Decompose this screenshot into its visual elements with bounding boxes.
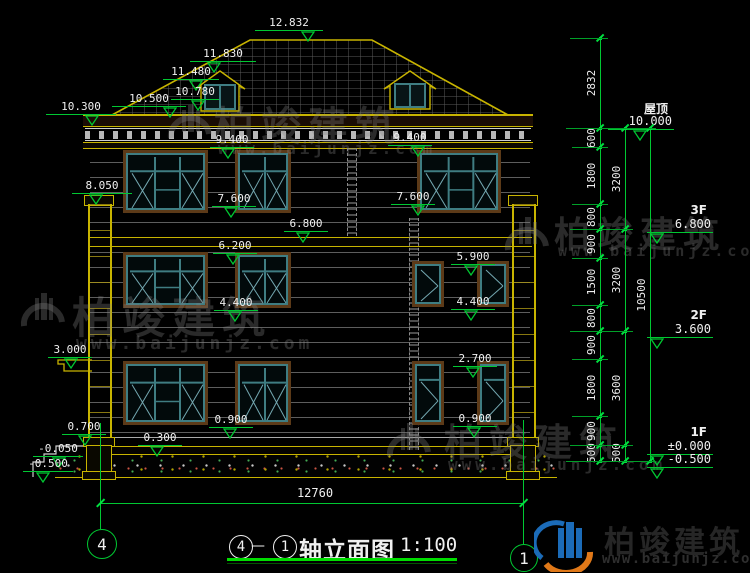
level-value: 12.832 [255, 16, 323, 29]
floor-name: 2F [690, 308, 707, 322]
overall-dim-line [100, 503, 523, 504]
title-underline [227, 558, 457, 561]
level-value: -0.500 [23, 457, 73, 470]
axis-bubble: 4 [87, 529, 117, 559]
axis-line-1 [523, 420, 524, 544]
extension-line [572, 147, 608, 148]
level-marker: 9.400 [388, 132, 432, 146]
brand-url: www.baijunjz.com [602, 551, 750, 567]
level-marker: 2.700 [453, 353, 497, 367]
level-triangle-icon [226, 254, 240, 265]
dim-chain-value: 3200 [610, 157, 624, 201]
watermark-logo-icon [500, 212, 552, 264]
title-underline-2 [227, 563, 457, 564]
dim-chain-value: 500 [610, 431, 624, 475]
extension-line [566, 128, 656, 129]
floor-level-marker: 1F±0.000 [647, 425, 713, 455]
level-triangle-icon [89, 194, 103, 205]
level-marker: 5.900 [451, 251, 495, 265]
elevation-drawing-canvas: 柏竣建筑www.baijunjz.com柏竣建筑www.baijunjz.com… [0, 0, 750, 573]
level-triangle-icon [650, 338, 664, 349]
extension-line [572, 204, 608, 205]
window [123, 150, 208, 213]
level-triangle-icon [301, 31, 315, 42]
window-frame [415, 364, 441, 422]
level-triangle-icon [36, 472, 50, 483]
level-triangle-icon [464, 265, 478, 276]
watermark-url: www.baijunjz.com [448, 455, 666, 474]
level-value: 8.050 [72, 179, 132, 192]
level-marker: 10.300 [46, 101, 116, 115]
level-triangle-icon [64, 358, 78, 369]
level-triangle-icon [221, 148, 235, 159]
level-marker: 0.900 [453, 413, 497, 427]
extension-line [570, 38, 608, 39]
watermark-logo-icon [16, 288, 68, 340]
dim-chain-value: 1800 [585, 154, 599, 198]
level-triangle-icon [191, 100, 205, 111]
level-triangle-icon [223, 428, 237, 439]
level-triangle-icon [650, 233, 664, 244]
level-triangle-icon [85, 115, 99, 126]
level-marker: 4.400 [451, 296, 495, 310]
window [412, 361, 444, 425]
window [412, 261, 444, 307]
level-triangle-icon [464, 310, 478, 321]
extension-line [570, 229, 633, 230]
level-value: 9.400 [388, 131, 432, 144]
floor-level-marker: 屋顶10.000 [608, 100, 674, 130]
floor-elevation-value: -0.500 [668, 453, 711, 466]
level-triangle-icon [467, 427, 481, 438]
level-value: 7.600 [391, 190, 435, 203]
floor-level-marker: 2F3.600 [647, 308, 713, 338]
window [123, 361, 208, 425]
overall-width-dim: 12760 [280, 487, 350, 500]
level-marker: 11.830 [190, 48, 256, 62]
level-triangle-icon [633, 130, 647, 141]
level-triangle-icon [411, 146, 425, 157]
level-triangle-icon [228, 311, 242, 322]
level-marker: 9.400 [210, 134, 254, 148]
downspout [347, 148, 357, 236]
axis-line-4 [100, 423, 101, 529]
floor-name: 1F [690, 425, 707, 439]
window-frame [415, 264, 441, 304]
level-marker: -0.050 [33, 443, 83, 457]
level-marker: 6.800 [284, 218, 328, 232]
level-triangle-icon [224, 207, 238, 218]
level-triangle-icon [296, 232, 310, 243]
extension-line [570, 445, 633, 446]
dim-chain-line [600, 38, 601, 461]
level-marker: 6.200 [213, 240, 257, 254]
level-triangle-icon [650, 468, 664, 479]
watermark-url: www.baijunjz.com [76, 333, 313, 354]
level-value: 11.830 [190, 47, 256, 60]
level-value: 2.700 [453, 352, 497, 365]
level-value: 6.800 [284, 217, 328, 230]
extension-line [572, 305, 608, 306]
dim-chain-value: 600 [585, 116, 599, 160]
floor-name: 3F [690, 203, 707, 217]
level-marker: 10.500 [112, 93, 186, 107]
level-value: 10.300 [46, 100, 116, 113]
dim-chain-value: 2832 [585, 61, 599, 105]
level-triangle-icon [163, 107, 177, 118]
level-marker: 3.000 [48, 344, 92, 358]
level-marker: 8.050 [72, 180, 132, 194]
extension-line [572, 258, 608, 259]
level-value: 5.900 [451, 250, 495, 263]
window-frame [126, 153, 205, 210]
level-triangle-icon [411, 205, 425, 216]
level-marker: 7.600 [391, 191, 435, 205]
dim-chain-value: 500 [585, 431, 599, 475]
level-marker: 12.832 [255, 17, 323, 31]
level-value: 11.480 [163, 65, 219, 78]
drawing-scale: 1:100 [400, 534, 457, 556]
level-value: -0.050 [33, 442, 83, 455]
level-value: 7.600 [212, 192, 256, 205]
level-value: 3.000 [48, 343, 92, 356]
window-glazing [130, 157, 205, 210]
level-marker: 7.600 [212, 193, 256, 207]
extension-line [572, 359, 608, 360]
ground-line [55, 477, 557, 478]
brand-logo-icon [534, 514, 598, 572]
level-value: 6.200 [213, 239, 257, 252]
level-value: 10.500 [112, 92, 186, 105]
level-marker: 4.400 [214, 297, 258, 311]
floor-level-marker: -0.500 [647, 452, 713, 468]
level-triangle-icon [466, 367, 480, 378]
extension-line [570, 331, 633, 332]
dim-chain-line [625, 128, 626, 461]
level-marker: 11.480 [163, 66, 219, 80]
level-value: 4.400 [214, 296, 258, 309]
title-axis-start-circle: 4 [229, 535, 253, 559]
dim-chain-value: 10500 [635, 273, 649, 317]
level-marker: 0.900 [209, 414, 253, 428]
level-value: 4.400 [451, 295, 495, 308]
watermark-logo-icon [382, 418, 434, 470]
level-value: 0.900 [209, 413, 253, 426]
window-frame [126, 364, 205, 422]
extension-line [566, 461, 656, 462]
window-glazing [130, 368, 205, 422]
level-triangle-icon [150, 446, 164, 457]
title-axis-separator: — [251, 538, 265, 554]
dim-chain-value: 3600 [610, 366, 624, 410]
floor-level-marker: 3F6.800 [647, 203, 713, 233]
extension-line [572, 416, 608, 417]
window-glazing [419, 268, 441, 304]
floor-elevation-value: 3.600 [675, 323, 711, 336]
level-value: 0.300 [138, 431, 182, 444]
dim-chain-line [650, 128, 651, 461]
dim-chain-value: 3200 [610, 258, 624, 302]
window-glazing [424, 157, 498, 210]
level-marker: 0.300 [138, 432, 182, 446]
level-value: 9.400 [210, 133, 254, 146]
title-axis-end-circle: 1 [273, 535, 297, 559]
level-marker: -0.500 [23, 458, 73, 472]
level-value: 0.900 [453, 412, 497, 425]
floor-band [88, 237, 532, 247]
dim-chain-value: 1800 [585, 366, 599, 410]
window-glazing [419, 368, 441, 422]
floor-elevation-value: 6.800 [675, 218, 711, 231]
